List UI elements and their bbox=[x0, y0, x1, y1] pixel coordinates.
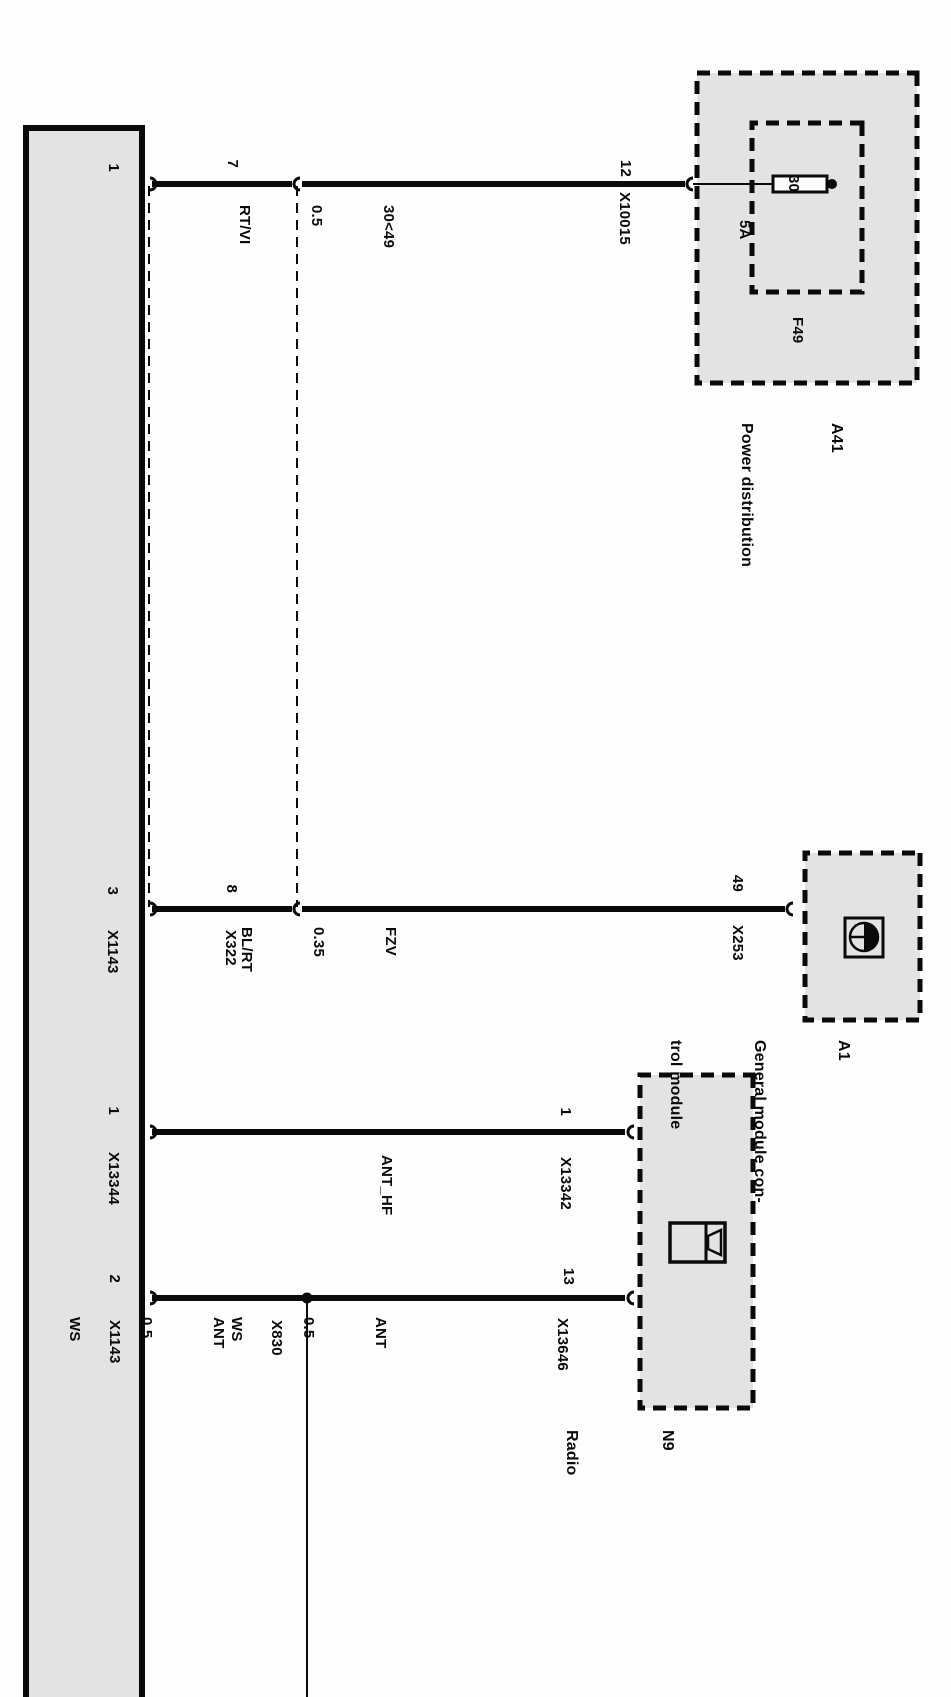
pin-13-label: 13 bbox=[508, 1235, 628, 1285]
circuit: ANT_HF bbox=[374, 1155, 398, 1215]
connector-x13342-label: X13342 bbox=[505, 1157, 625, 1210]
wire1-spec-label: 30<49 0.5 RT/VI bbox=[184, 205, 448, 248]
connector-x10015-label: X10015 bbox=[564, 192, 684, 245]
wire-color: RT/VI bbox=[232, 205, 256, 248]
power-distribution-label: A41 Power distribution bbox=[671, 423, 911, 567]
diagram-canvas: A41 Power distribution F49 30 5A A1 Gene… bbox=[0, 0, 951, 1697]
pin-7-label: 7 bbox=[172, 118, 292, 168]
wire3-spec-label: ANT_HF bbox=[326, 1155, 446, 1215]
connector-x322-label: X322 bbox=[170, 930, 290, 966]
component-name-line1: General module con- bbox=[745, 1040, 773, 1203]
circuit: ANT bbox=[368, 1317, 392, 1348]
circuit: ANT bbox=[206, 1317, 230, 1348]
radio-antenna-pin-label: 1 bbox=[505, 1066, 625, 1116]
radio-label: N9 Radio bbox=[491, 1430, 747, 1475]
component-id: N9 bbox=[651, 1430, 683, 1475]
general-module-label: A1 General module con- trol module bbox=[605, 1040, 913, 1203]
circuit: 30<49 bbox=[376, 205, 400, 248]
bus-bar bbox=[26, 128, 142, 1697]
pin-49-label: 49 bbox=[677, 842, 797, 892]
connector-x253-label: X253 bbox=[677, 925, 797, 961]
connector-x13646-label: X13646 bbox=[502, 1318, 622, 1371]
component-name-line2: trol module bbox=[661, 1040, 689, 1203]
component-name: Radio bbox=[555, 1430, 587, 1475]
connector-x1143-label: X1143 bbox=[52, 930, 172, 974]
gauge: 0.5 bbox=[304, 205, 328, 248]
component-name: Power distribution bbox=[731, 423, 761, 567]
component-id: A41 bbox=[821, 423, 851, 567]
fuse-f49-box bbox=[752, 123, 862, 292]
connector-x1143-b-label: X1143 bbox=[54, 1320, 174, 1364]
circuit: FZV bbox=[378, 927, 402, 972]
wire1-bar-pin-label: 1 bbox=[53, 122, 173, 172]
wiring-diagram-page: A41 Power distribution F49 30 5A A1 Gene… bbox=[0, 0, 951, 1697]
wire3-bar-pin-label: 1 bbox=[53, 1065, 173, 1115]
fuse-id-label: F49 bbox=[737, 317, 857, 343]
pin-12-label: 12 bbox=[565, 127, 685, 177]
fuse-terminal-label: 30 bbox=[733, 175, 853, 201]
fuse-rating-label: 5A bbox=[684, 220, 804, 246]
pin-8-label: 8 bbox=[171, 843, 291, 893]
component-id: A1 bbox=[829, 1040, 857, 1203]
pin-3-label: 3 bbox=[52, 845, 172, 895]
gauge: 0.35 bbox=[306, 927, 330, 972]
wire4-bar-pin-label: 2 bbox=[54, 1233, 174, 1283]
connector-x13344-label: X13344 bbox=[53, 1152, 173, 1205]
connector-link-dashes bbox=[149, 186, 297, 907]
